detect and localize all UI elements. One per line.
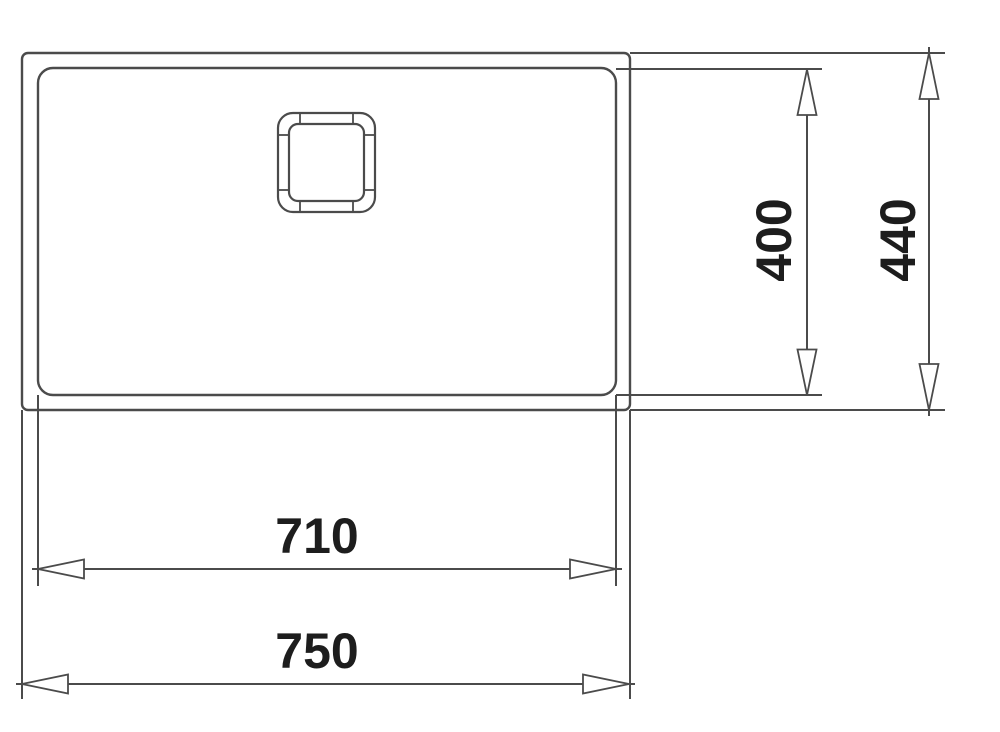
sink-outer-edge <box>22 53 630 410</box>
arrow-up-icon <box>798 70 817 116</box>
dimension-outer-width: 750 <box>16 623 635 694</box>
drain <box>278 113 375 212</box>
dimension-label-outer-width: 750 <box>275 623 358 679</box>
sink-outline <box>22 53 630 410</box>
drain-corner-ticks <box>279 114 374 211</box>
arrow-left-icon <box>38 560 84 579</box>
arrow-left-icon <box>22 675 68 694</box>
dimension-inner-width: 710 <box>32 508 622 579</box>
dimension-inner-depth: 400 <box>746 70 817 396</box>
drawing-canvas: 400 440 710 750 <box>0 0 1000 732</box>
sink-dimension-diagram: 400 440 710 750 <box>0 0 1000 732</box>
dimension-outer-depth: 440 <box>870 47 939 416</box>
arrow-up-icon <box>920 53 939 99</box>
dimension-label-outer-depth: 440 <box>870 198 926 281</box>
sink-bowl-edge <box>38 68 616 395</box>
arrow-down-icon <box>798 350 817 396</box>
arrow-right-icon <box>570 560 616 579</box>
drain-inner-edge <box>289 124 364 201</box>
dimension-label-inner-width: 710 <box>275 508 358 564</box>
dimension-label-inner-depth: 400 <box>746 198 802 281</box>
arrow-down-icon <box>920 364 939 410</box>
arrow-right-icon <box>583 675 629 694</box>
drain-outer-edge <box>278 113 375 212</box>
